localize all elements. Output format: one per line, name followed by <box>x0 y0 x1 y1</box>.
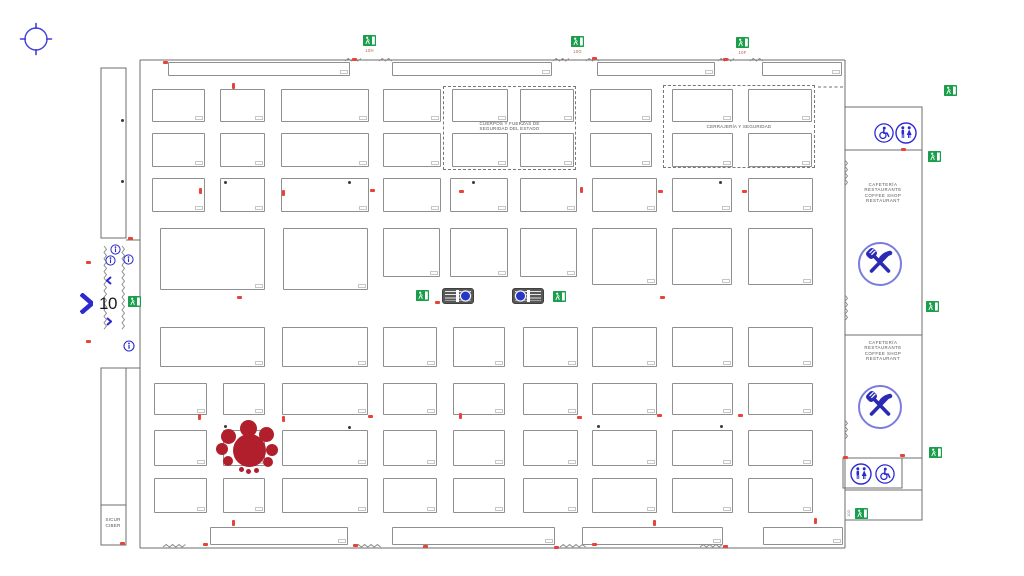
red-door-marker <box>368 415 373 418</box>
booth[interactable] <box>383 430 437 466</box>
exit-sign-icon <box>416 290 429 301</box>
exit-sign-icon <box>944 85 957 96</box>
booth[interactable] <box>383 89 441 122</box>
cafeteria-label: CAFETERÍARESTAURANTECOFFEE SHOPRESTAURAN… <box>864 182 901 204</box>
red-door-marker <box>203 543 208 546</box>
pillar-dot <box>720 425 723 428</box>
booth[interactable] <box>592 478 657 513</box>
booth[interactable] <box>597 62 715 76</box>
compass-icon[interactable] <box>16 19 56 59</box>
booth[interactable] <box>154 478 207 513</box>
booth[interactable] <box>220 133 265 167</box>
direction-chevron-icon <box>80 293 93 314</box>
exit-sign-icon <box>929 447 942 458</box>
booth[interactable] <box>282 383 368 415</box>
red-door-marker <box>658 190 663 193</box>
pillar-dot <box>224 425 227 428</box>
red-door-marker <box>459 413 462 419</box>
red-door-marker <box>814 518 817 524</box>
booth[interactable] <box>450 178 508 212</box>
zigzag-wall-joint <box>355 545 381 548</box>
booth[interactable] <box>450 228 508 277</box>
stairs-gap <box>456 290 459 302</box>
pillar-dot <box>348 426 351 429</box>
info-icon <box>110 244 121 255</box>
booth[interactable] <box>672 327 733 367</box>
booth[interactable] <box>160 327 265 367</box>
booth[interactable] <box>223 478 265 513</box>
booth[interactable] <box>523 383 578 415</box>
booth[interactable] <box>392 527 555 545</box>
booth[interactable] <box>748 327 813 367</box>
red-door-marker <box>435 301 440 304</box>
red-door-marker <box>459 190 464 193</box>
red-door-marker <box>282 416 285 422</box>
booth[interactable] <box>220 89 265 122</box>
red-door-marker <box>653 520 656 526</box>
booth[interactable] <box>590 89 652 122</box>
pillar-dot <box>224 181 227 184</box>
sicur-ciber-label: SICUR CIBER <box>105 517 120 528</box>
red-door-marker <box>660 296 665 299</box>
cluster-marker-dot <box>239 467 244 472</box>
exit-sign-icon <box>926 301 939 312</box>
cluster-marker-dot <box>240 420 257 437</box>
booth[interactable] <box>520 228 577 277</box>
red-door-marker <box>723 58 728 61</box>
cafeteria-label: CAFETERÍARESTAURANTECOFFEE SHOPRESTAURAN… <box>864 340 901 362</box>
exit-gate-label: 10G <box>573 49 582 54</box>
booth[interactable] <box>748 178 813 212</box>
red-door-marker <box>580 187 583 193</box>
exit-sign-icon <box>128 296 141 307</box>
booth[interactable] <box>590 133 652 167</box>
booth[interactable] <box>672 478 733 513</box>
plan-text-label: 10D <box>847 510 852 517</box>
red-door-marker <box>657 414 662 417</box>
booth[interactable] <box>672 383 733 415</box>
booth[interactable] <box>152 89 205 122</box>
booth[interactable] <box>520 178 577 212</box>
booth[interactable] <box>392 62 552 76</box>
booth[interactable] <box>582 527 723 545</box>
booth[interactable] <box>383 178 441 212</box>
booth[interactable] <box>672 228 732 285</box>
exit-sign-icon <box>855 508 868 519</box>
exit-sign-icon <box>928 151 941 162</box>
red-door-marker <box>723 545 728 548</box>
exit-sign-icon <box>571 36 584 47</box>
restaurant-icon <box>857 384 903 430</box>
booth[interactable] <box>283 228 368 290</box>
booth[interactable] <box>523 430 578 466</box>
booth[interactable] <box>223 383 265 415</box>
exit-sign-icon <box>736 37 749 48</box>
floorplan[interactable]: 10 SICUR CIBER CUERPOS Y FUERZAS DESEGUR… <box>0 0 1024 576</box>
sicur-ciber-line2: CIBER <box>105 523 120 529</box>
red-door-marker <box>843 456 848 459</box>
red-door-marker <box>592 543 597 546</box>
exit-gate-label: 10H <box>365 48 374 53</box>
red-door-marker <box>353 544 358 547</box>
booth[interactable] <box>281 178 369 212</box>
red-door-marker <box>742 190 747 193</box>
hall-number-label: 10 <box>99 294 117 314</box>
booth[interactable] <box>282 430 368 466</box>
booth[interactable] <box>152 178 205 212</box>
booth[interactable] <box>383 478 437 513</box>
wheelchair-icon <box>874 123 894 143</box>
red-door-marker <box>86 261 91 264</box>
booth[interactable] <box>154 430 207 466</box>
red-door-marker <box>232 83 235 89</box>
stairs-gap <box>527 290 530 302</box>
wc-icon <box>895 122 917 144</box>
booth[interactable] <box>210 527 348 545</box>
booth[interactable] <box>748 478 813 513</box>
red-door-marker <box>120 542 125 545</box>
booth[interactable] <box>592 430 657 466</box>
sector-label: CUERPOS Y FUERZAS DESEGURIDAD DEL ESTADO <box>479 121 539 131</box>
direction-chevron-icon <box>106 317 112 326</box>
booth[interactable] <box>152 133 205 167</box>
booth[interactable] <box>592 383 657 415</box>
red-door-marker <box>163 61 168 64</box>
red-door-marker <box>86 340 91 343</box>
cluster-marker-dot <box>216 443 228 455</box>
booth[interactable] <box>453 430 505 466</box>
booth[interactable] <box>281 89 369 122</box>
lift-icon <box>460 291 471 302</box>
sector-label: CERRAJERÍA Y SEGURIDAD <box>707 124 772 129</box>
booth[interactable] <box>748 383 813 415</box>
red-door-marker <box>592 57 597 60</box>
red-door-marker <box>901 148 906 151</box>
cluster-marker-dot <box>221 429 236 444</box>
cluster-marker-dot <box>263 457 273 467</box>
red-door-marker <box>554 546 559 549</box>
exit-sign-icon <box>553 291 566 302</box>
red-door-marker <box>423 545 428 548</box>
pillar-dot <box>121 119 124 122</box>
red-door-marker <box>282 190 285 196</box>
booth[interactable] <box>672 430 733 466</box>
zigzag-wall-joint <box>163 545 185 548</box>
cluster-marker-dot <box>223 456 233 466</box>
red-door-marker <box>232 520 235 526</box>
booth[interactable] <box>154 383 207 415</box>
booth[interactable] <box>523 327 578 367</box>
booth[interactable] <box>168 62 350 76</box>
booth[interactable] <box>762 62 842 76</box>
booth[interactable] <box>383 133 441 167</box>
cluster-marker-dot <box>266 444 278 456</box>
red-door-marker <box>577 416 582 419</box>
booth[interactable] <box>748 228 813 285</box>
booth[interactable] <box>282 327 368 367</box>
compass-glyph <box>16 19 56 59</box>
exit-gate-label: 10F <box>738 50 746 55</box>
lift-icon <box>515 291 526 302</box>
booth[interactable] <box>383 383 437 415</box>
exit-sign-icon <box>363 35 376 46</box>
red-door-marker <box>198 414 201 420</box>
cluster-marker-dot <box>246 469 251 474</box>
booth[interactable] <box>453 478 505 513</box>
booth[interactable] <box>281 133 369 167</box>
stairs-lift-block <box>442 288 474 304</box>
cluster-marker-dot <box>254 468 259 473</box>
red-door-marker <box>738 414 743 417</box>
booth[interactable] <box>453 327 505 367</box>
pillar-dot <box>348 181 351 184</box>
booth[interactable] <box>672 178 732 212</box>
red-door-marker <box>352 58 357 61</box>
info-icon <box>123 340 135 352</box>
wheelchair-icon <box>875 464 895 484</box>
booth[interactable] <box>592 228 657 285</box>
booth[interactable] <box>592 178 657 212</box>
booth[interactable] <box>592 327 657 367</box>
red-door-marker <box>237 296 242 299</box>
booth[interactable] <box>282 478 368 513</box>
pillar-dot <box>719 181 722 184</box>
red-door-marker <box>128 237 133 240</box>
booth[interactable] <box>523 478 578 513</box>
info-icon <box>123 254 134 265</box>
pillar-dot <box>121 180 124 183</box>
restaurant-icon <box>857 241 903 287</box>
sicur-ciber-line1: SICUR <box>105 517 120 523</box>
direction-chevron-icon <box>106 276 112 285</box>
red-door-marker <box>900 454 905 457</box>
booth[interactable] <box>383 327 437 367</box>
info-icon <box>105 255 116 266</box>
booth[interactable] <box>748 430 813 466</box>
booth[interactable] <box>383 228 440 277</box>
booth[interactable] <box>160 228 265 290</box>
pillar-dot <box>472 181 475 184</box>
pillar-dot <box>597 425 600 428</box>
red-door-marker <box>199 188 202 194</box>
booth[interactable] <box>453 383 505 415</box>
cluster-marker-dot <box>259 427 274 442</box>
red-door-marker <box>370 189 375 192</box>
wc-icon <box>850 463 872 485</box>
stairs-lift-block <box>512 288 544 304</box>
booth[interactable] <box>763 527 843 545</box>
